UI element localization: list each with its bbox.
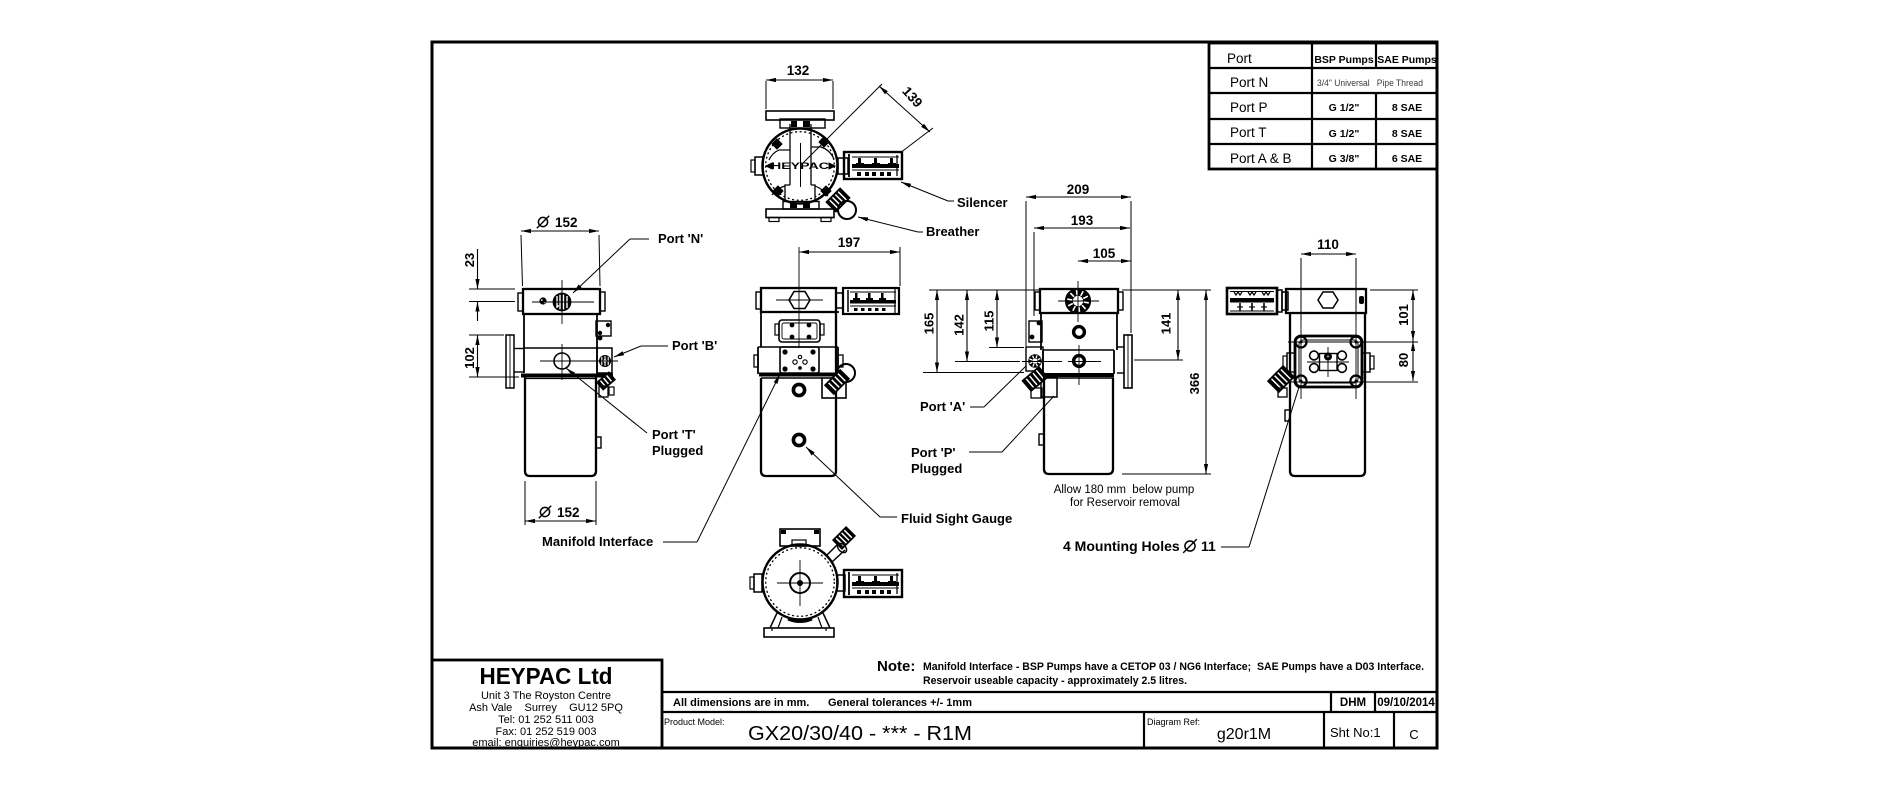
svg-text:HEYPAC Ltd: HEYPAC Ltd — [480, 663, 613, 689]
svg-text:Tel: 01 252 511 003: Tel: 01 252 511 003 — [498, 714, 594, 726]
svg-text:193: 193 — [1071, 213, 1094, 228]
svg-text:G 3/8": G 3/8" — [1329, 153, 1360, 165]
svg-text:142: 142 — [952, 314, 967, 336]
svg-text:Allow 180 mm below pump: Allow 180 mm below pump — [1054, 484, 1195, 496]
svg-text:3/4" Universal Pipe Thread: 3/4" Universal Pipe Thread — [1317, 78, 1423, 89]
svg-text:Breather: Breather — [926, 224, 979, 239]
svg-text:197: 197 — [838, 235, 861, 250]
svg-text:209: 209 — [1067, 182, 1090, 197]
svg-text:165: 165 — [922, 313, 937, 335]
svg-text:102: 102 — [462, 347, 477, 369]
svg-text:All dimensions are in mm.: All dimensions are in mm. — [673, 697, 809, 709]
svg-text:8 SAE: 8 SAE — [1392, 102, 1422, 114]
svg-text:Port 'T': Port 'T' — [652, 427, 696, 442]
svg-text:4 Mounting Holes: 4 Mounting Holes — [1063, 538, 1180, 554]
svg-text:Reservoir useable capacity - a: Reservoir useable capacity - approximate… — [923, 675, 1187, 687]
svg-text:Product Model:: Product Model: — [664, 717, 725, 727]
svg-text:141: 141 — [1159, 313, 1174, 335]
svg-text:G 1/2": G 1/2" — [1329, 102, 1360, 114]
svg-text:101: 101 — [1396, 304, 1411, 326]
svg-text:152: 152 — [557, 505, 580, 520]
svg-text:email: enquiries@heypac.com: email: enquiries@heypac.com — [472, 737, 620, 749]
svg-text:Fluid Sight Gauge: Fluid Sight Gauge — [901, 511, 1012, 526]
svg-text:11: 11 — [1201, 538, 1216, 554]
svg-text:Port 'N': Port 'N' — [658, 231, 703, 246]
svg-text:366: 366 — [1187, 373, 1202, 395]
svg-text:Ash Vale Surrey GU12 5PQ: Ash Vale Surrey GU12 5PQ — [469, 702, 623, 714]
svg-text:Manifold Interface: Manifold Interface — [542, 534, 653, 549]
svg-text:Port: Port — [1227, 51, 1252, 66]
svg-text:General tolerances +/- 1mm: General tolerances +/- 1mm — [828, 697, 972, 709]
svg-text:80: 80 — [1396, 353, 1411, 367]
svg-text:SAE Pumps: SAE Pumps — [1377, 54, 1437, 66]
svg-text:110: 110 — [1317, 237, 1339, 252]
svg-text:Port 'B': Port 'B' — [672, 338, 717, 353]
svg-text:Silencer: Silencer — [957, 195, 1008, 210]
svg-text:Plugged: Plugged — [652, 443, 703, 458]
svg-text:for Reservoir removal: for Reservoir removal — [1070, 497, 1180, 509]
svg-text:132: 132 — [787, 63, 810, 78]
svg-text:152: 152 — [555, 215, 578, 230]
svg-text:Port 'P': Port 'P' — [911, 445, 955, 460]
svg-text:115: 115 — [982, 311, 997, 332]
svg-text:Sht No:1: Sht No:1 — [1330, 725, 1381, 740]
svg-text:105: 105 — [1093, 246, 1116, 261]
svg-text:Port T: Port T — [1230, 125, 1267, 140]
svg-text:09/10/2014: 09/10/2014 — [1377, 697, 1435, 709]
svg-text:BSP Pumps: BSP Pumps — [1314, 54, 1373, 66]
svg-text:DHM: DHM — [1340, 697, 1366, 709]
svg-text:GX20/30/40 - *** - R1M: GX20/30/40 - *** - R1M — [748, 723, 972, 745]
svg-text:8 SAE: 8 SAE — [1392, 128, 1422, 140]
svg-text:HEYPAC: HEYPAC — [771, 161, 829, 172]
svg-text:6 SAE: 6 SAE — [1392, 153, 1422, 165]
svg-text:C: C — [1409, 727, 1418, 742]
svg-text:Port N: Port N — [1230, 75, 1268, 90]
svg-text:Port P: Port P — [1230, 100, 1268, 115]
svg-text:G 1/2": G 1/2" — [1329, 128, 1360, 140]
svg-text:Plugged: Plugged — [911, 461, 962, 476]
svg-text:Port A & B: Port A & B — [1230, 151, 1292, 166]
svg-text:Manifold Interface - BSP Pumps: Manifold Interface - BSP Pumps have a CE… — [923, 661, 1424, 673]
svg-text:Port 'A': Port 'A' — [920, 399, 965, 414]
svg-text:Note:: Note: — [877, 658, 915, 675]
svg-text:Unit 3 The Royston Centre: Unit 3 The Royston Centre — [481, 690, 611, 702]
svg-text:Diagram Ref:: Diagram Ref: — [1147, 717, 1200, 727]
svg-text:g20r1M: g20r1M — [1217, 726, 1271, 743]
svg-text:23: 23 — [462, 253, 477, 267]
